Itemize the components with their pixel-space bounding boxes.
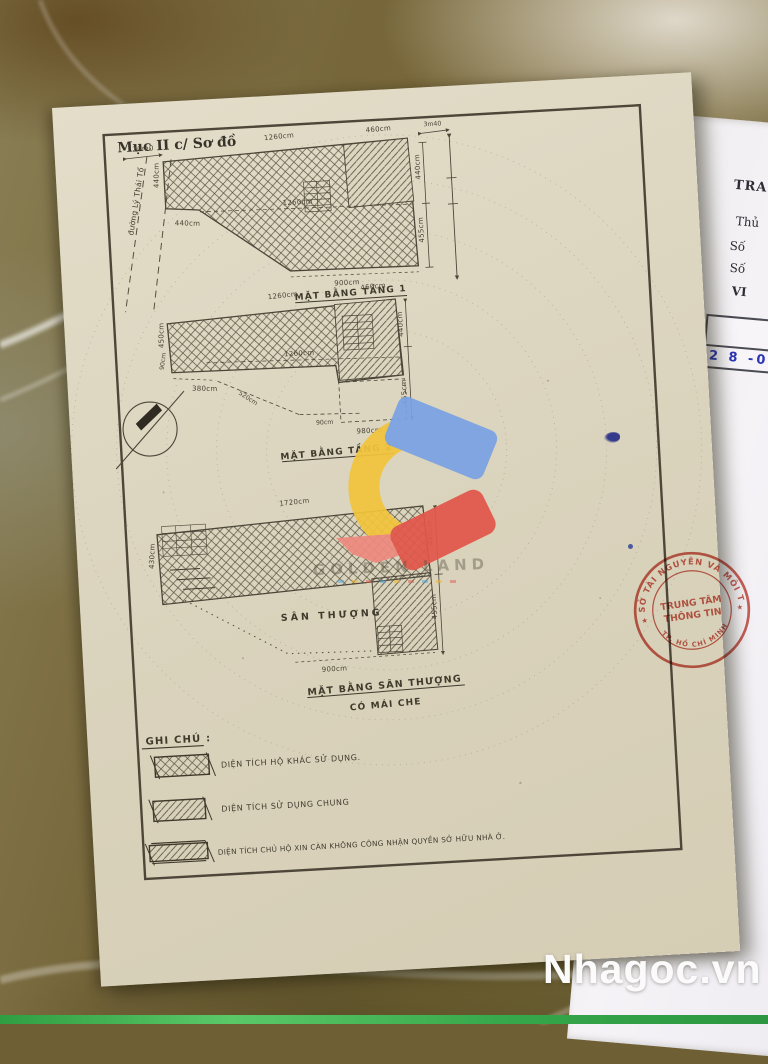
dim-top-l1: 1260cm — [264, 131, 295, 142]
dim-street-width: 20m0 — [132, 144, 154, 153]
next-page-text-fragment-2: Số — [729, 239, 746, 254]
dim-left-l3: 430cm — [148, 543, 157, 569]
dim-bottom-left-l2: 380cm — [192, 385, 218, 393]
shared-area-level2 — [334, 299, 402, 380]
blue-ink-dot — [628, 544, 633, 549]
next-page-date-table: Ngày, t nă 2 8 -07 — [702, 314, 768, 383]
legend-label-1: DIỆN TÍCH HỘ KHÁC SỬ DỤNG. — [221, 751, 361, 771]
dim-inner-l2: 1260cm — [284, 349, 315, 359]
next-page-text-fragment-4: VI — [731, 284, 747, 299]
dim-inner-l1: 1260cm — [282, 198, 313, 208]
dim-left-bottom-l1: 440cm — [175, 219, 201, 227]
dim-left-l1: 440cm — [153, 163, 161, 189]
dim-bottom-l1: 900cm — [334, 278, 360, 287]
caption-roof-line1: MẶT BẰNG SÂN THƯỢNG — [307, 671, 462, 698]
date-stamp-value: 2 8 -07 — [704, 346, 768, 381]
dim-diagonal-l2: 520cm — [237, 390, 259, 407]
legend-swatch-diagonal-ticks — [149, 842, 208, 861]
legend-swatch-crosshatch — [154, 754, 209, 777]
dim-bottom-l3: 900cm — [322, 664, 348, 673]
next-page-text-fragment-1: Thủ — [735, 214, 760, 230]
dim-top-l3: 1720cm — [279, 497, 310, 508]
dim-right-lower-l1: 455cm — [417, 217, 426, 243]
bottom-green-strip — [0, 1015, 768, 1024]
logo-watermark-dots — [338, 580, 458, 583]
caption-roof-line2: CÓ MÁI CHE — [349, 695, 422, 713]
dim-left-small-l2: 90cm — [159, 352, 168, 370]
legend-swatch-diagonal — [153, 799, 206, 822]
red-official-stamp: SỞ TÀI NGUYÊN VÀ MÔI TRƯỜNG TP. HỒ CHÍ M… — [622, 540, 762, 680]
dim-offset-l1: 3m40 — [423, 120, 441, 128]
next-page-text-fragment-3: Số — [729, 261, 746, 276]
dim-top-right-l1: 460cm — [365, 124, 391, 134]
logo-blue-shape — [382, 396, 500, 482]
stamp-star-right: ★ — [736, 602, 744, 612]
dim-left-l2: 450cm — [157, 323, 165, 349]
dim-right-upper-l2: 440cm — [396, 311, 405, 337]
stamp-star-left: ★ — [641, 615, 649, 625]
street-label: đường Lý Thái Tổ — [126, 167, 145, 236]
shared-area-level1 — [343, 138, 414, 208]
terrace-area-label: SÂN THƯỢNG — [280, 606, 382, 624]
legend-label-2: DIỆN TÍCH SỬ DỤNG CHUNG — [221, 795, 350, 814]
dim-right-lower-l3: 455cm — [430, 594, 439, 620]
dim-right-upper-l1: 440cm — [413, 154, 422, 180]
site-brand-watermark: Nhagoc.vn — [543, 946, 762, 993]
legend-label-3: DIỆN TÍCH CHỦ HỘ XIN CÀN KHÔNG CÔNG NHẬN… — [218, 831, 506, 857]
next-page-heading-fragment: TRA — [733, 178, 768, 196]
north-arrow-compass — [112, 391, 188, 469]
dim-top-l2: 1260cm — [267, 290, 298, 301]
legend: GHI CHÚ : DIỆN TÍCH HỘ KHÁC SỬ DỤNG. DIỆ… — [139, 715, 506, 866]
